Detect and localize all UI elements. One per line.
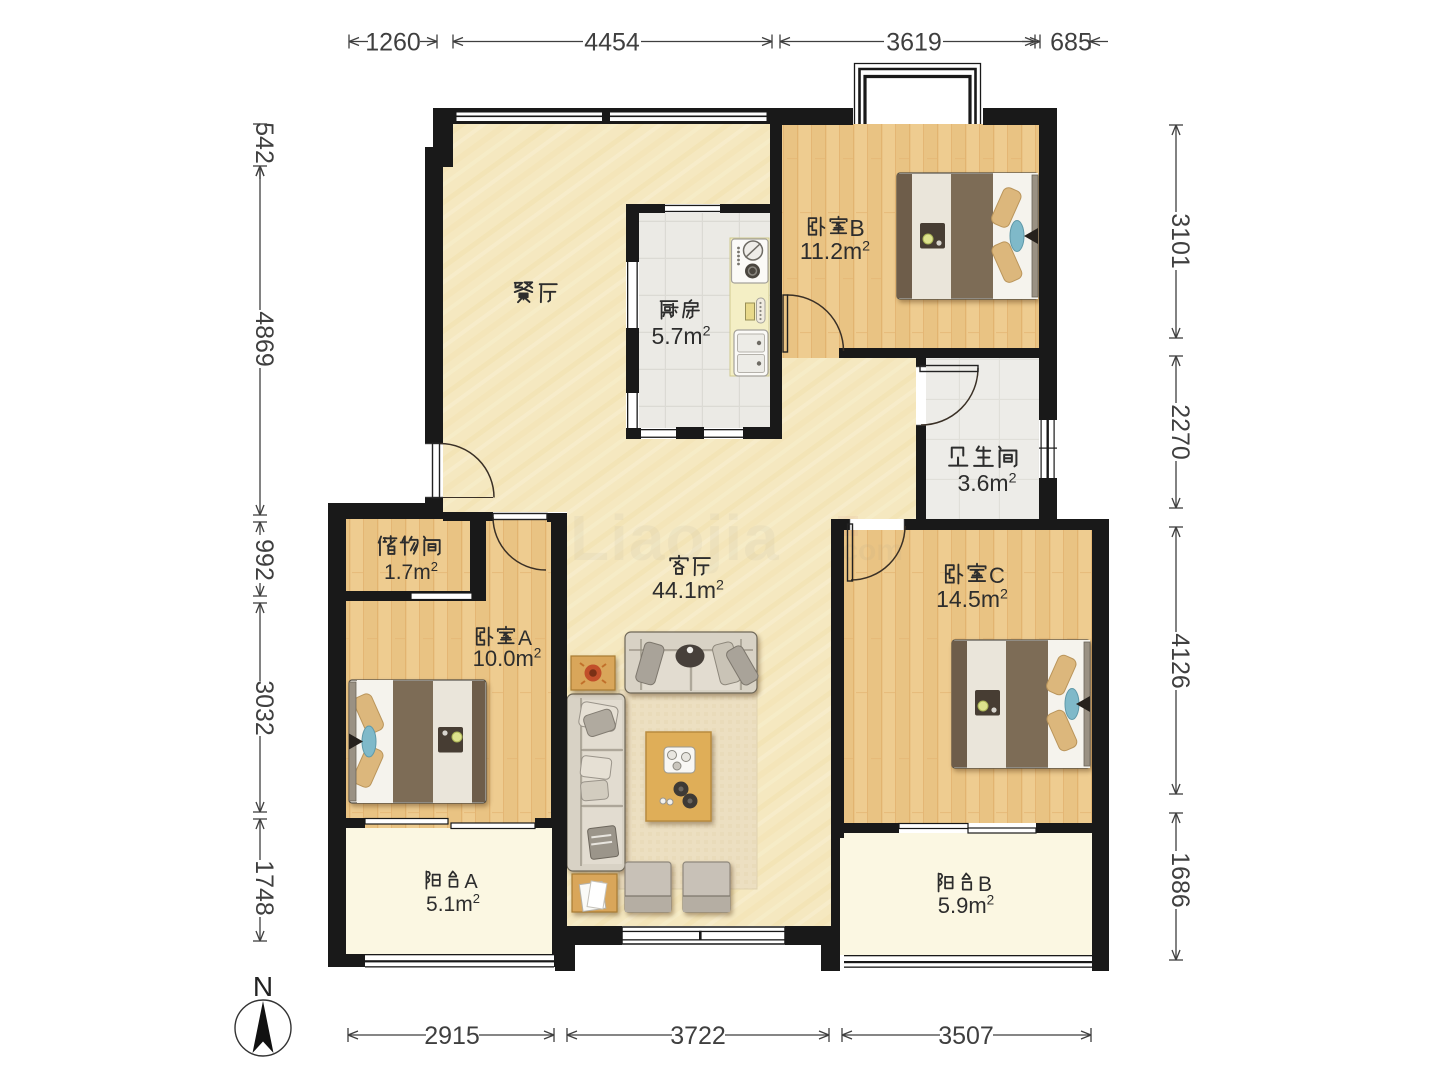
svg-text:4869: 4869	[250, 311, 278, 367]
svg-text:5.7m2: 5.7m2	[651, 323, 710, 349]
svg-text:3.6m2: 3.6m2	[957, 470, 1016, 496]
svg-text:5.1m2: 5.1m2	[426, 891, 480, 916]
svg-text:992: 992	[250, 539, 278, 581]
svg-text:542: 542	[250, 122, 278, 164]
svg-text:1260: 1260	[365, 29, 421, 57]
svg-text:10.0m2: 10.0m2	[473, 646, 542, 671]
svg-text:A: A	[464, 871, 478, 893]
svg-text:N: N	[253, 971, 273, 1002]
svg-text:1.7m2: 1.7m2	[384, 559, 438, 584]
svg-text:Liaojia: Liaojia	[570, 502, 780, 574]
svg-text:1686: 1686	[1166, 852, 1194, 908]
svg-text:3032: 3032	[250, 680, 278, 736]
svg-text:3507: 3507	[938, 1022, 994, 1050]
svg-text:44.1m2: 44.1m2	[652, 577, 724, 603]
svg-text:3722: 3722	[670, 1022, 726, 1050]
svg-text:1748: 1748	[250, 860, 278, 916]
svg-text:14.5m2: 14.5m2	[936, 586, 1008, 612]
svg-text:685: 685	[1050, 29, 1092, 57]
svg-text:2915: 2915	[424, 1022, 480, 1050]
svg-text:3619: 3619	[886, 29, 942, 57]
svg-text:11.2m2: 11.2m2	[800, 238, 870, 264]
svg-text:2270: 2270	[1166, 404, 1194, 460]
svg-text:C: C	[989, 563, 1005, 588]
svg-text:5.9m2: 5.9m2	[938, 893, 995, 918]
svg-text:4454: 4454	[584, 29, 640, 57]
svg-text:4126: 4126	[1166, 633, 1194, 689]
svg-text:3101: 3101	[1166, 213, 1194, 269]
